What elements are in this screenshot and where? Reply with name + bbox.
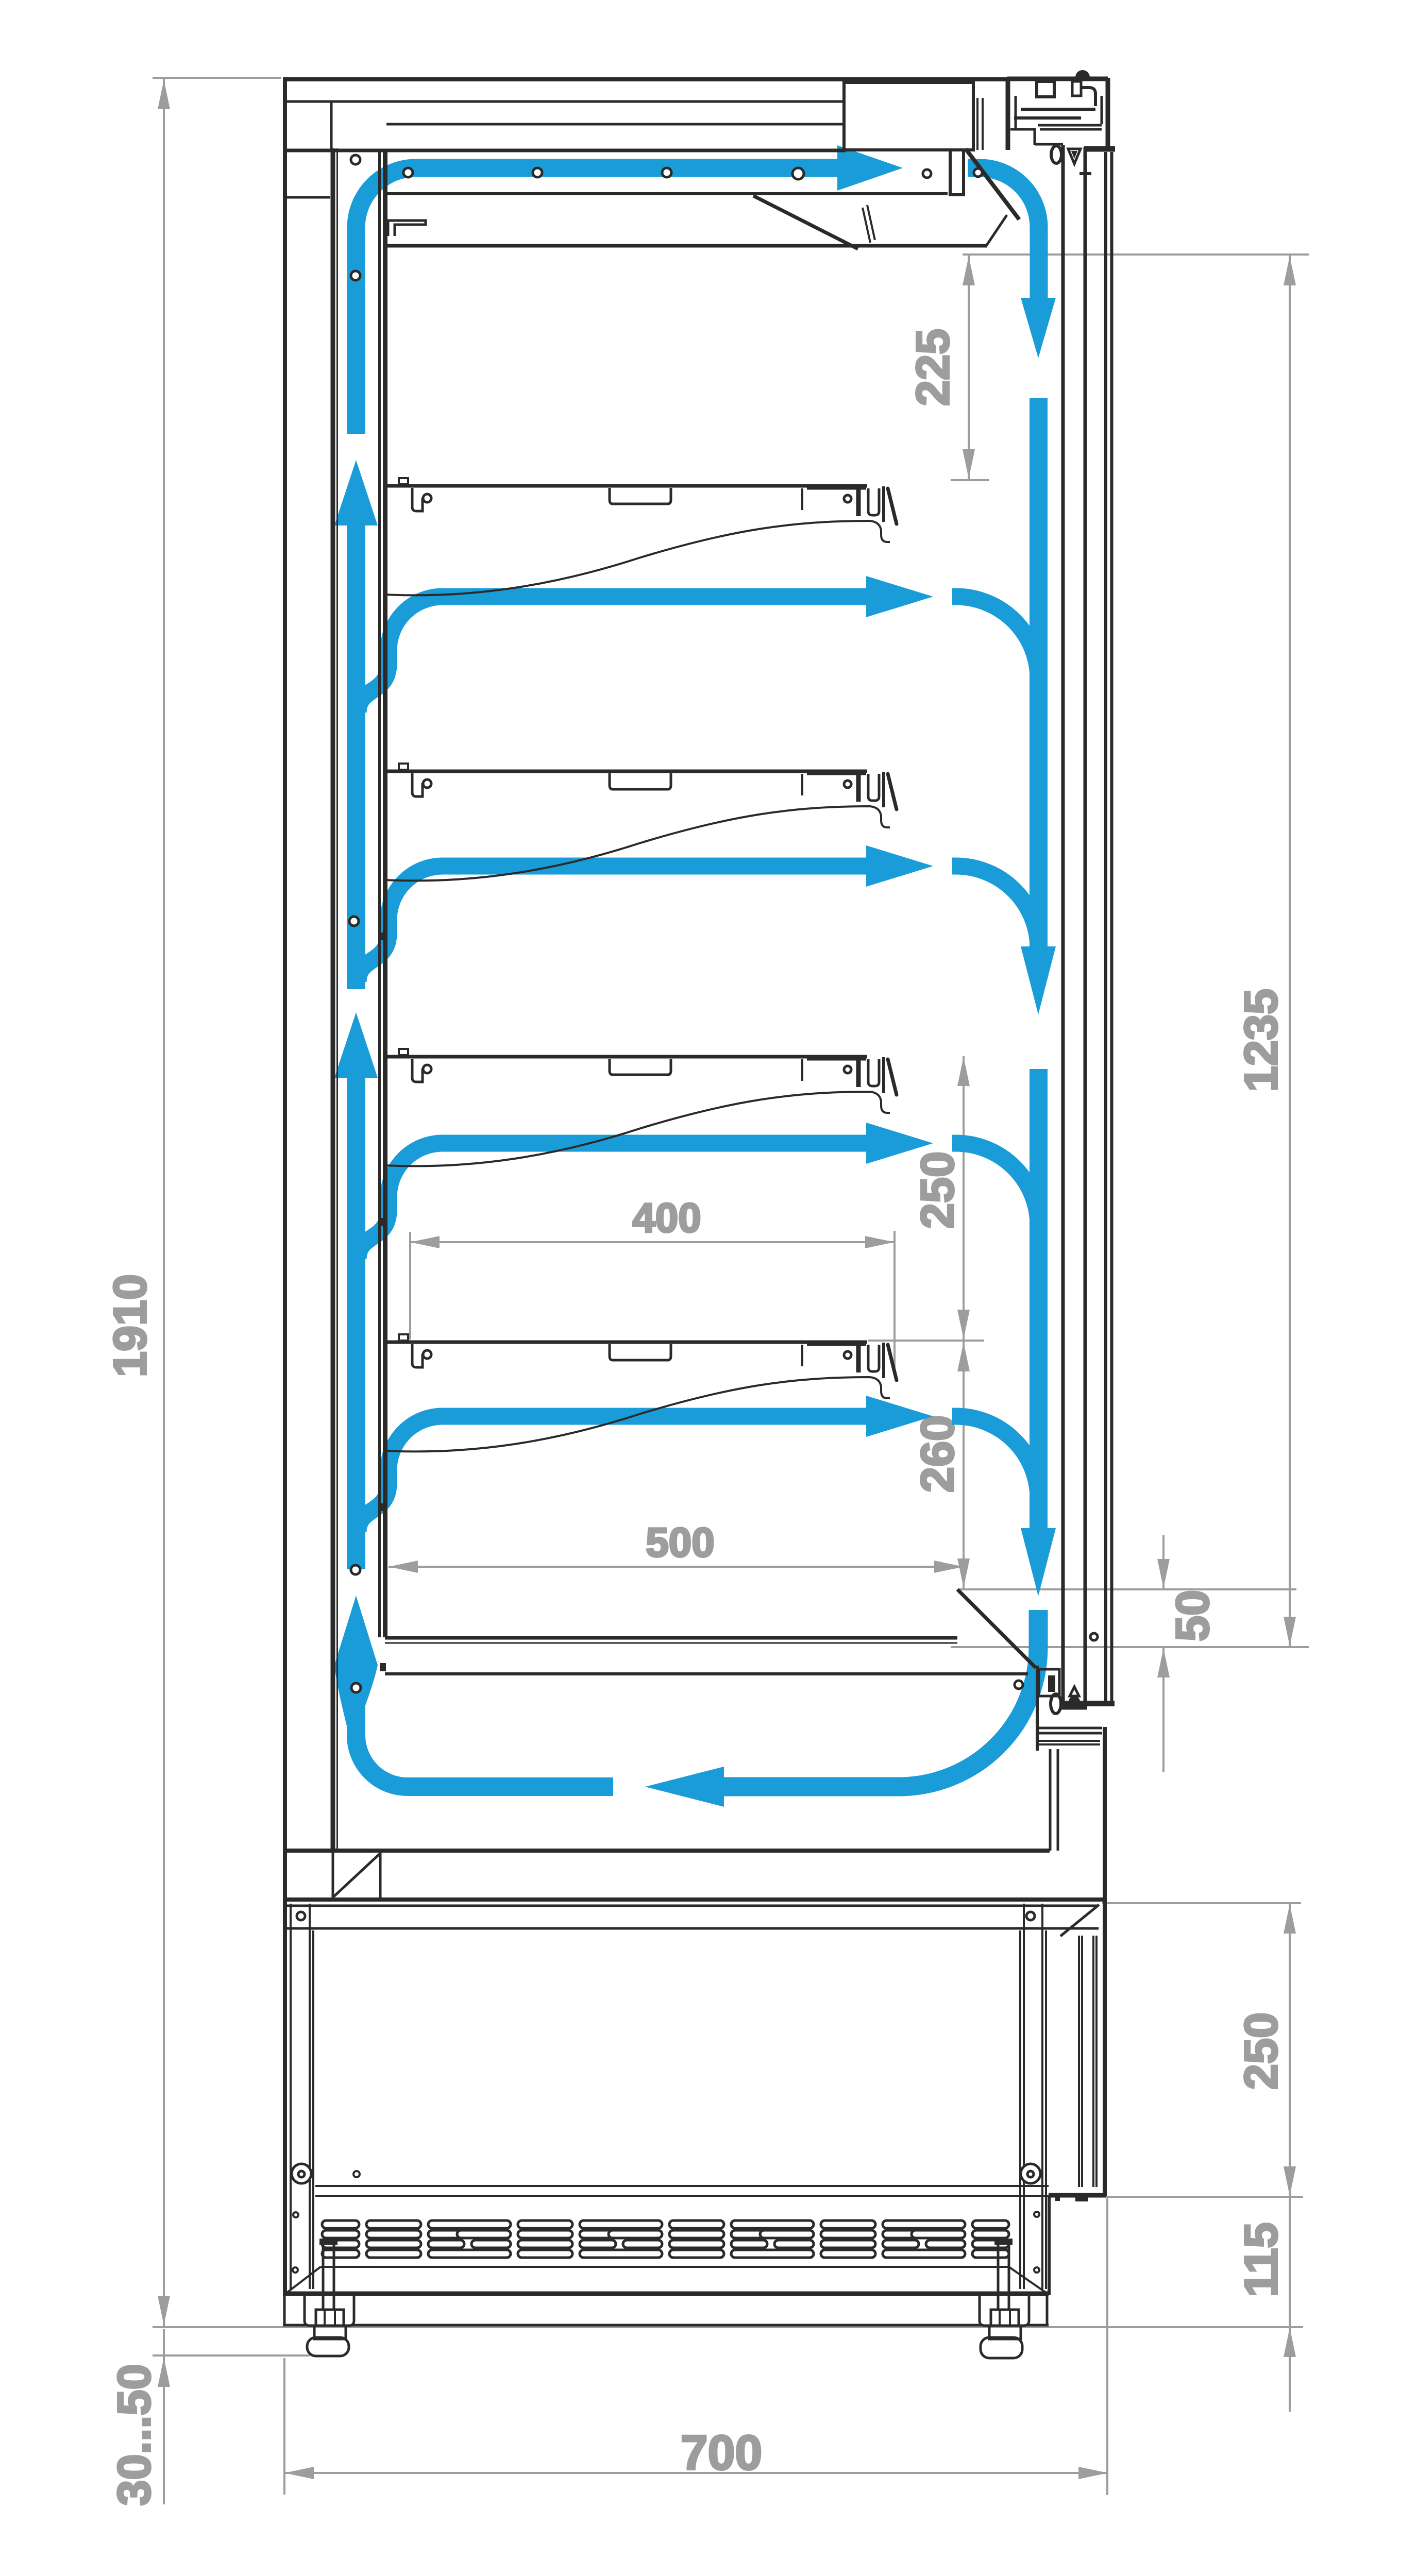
svg-text:250: 250 bbox=[912, 1151, 964, 1229]
svg-text:1235: 1235 bbox=[1236, 989, 1287, 1092]
svg-text:50: 50 bbox=[1167, 1590, 1219, 1641]
svg-text:260: 260 bbox=[912, 1415, 964, 1493]
svg-text:250: 250 bbox=[1236, 2012, 1287, 2090]
svg-text:700: 700 bbox=[681, 2426, 763, 2480]
svg-text:400: 400 bbox=[632, 1195, 701, 1241]
svg-text:115: 115 bbox=[1236, 2222, 1287, 2297]
svg-text:500: 500 bbox=[646, 1519, 714, 1565]
svg-text:1910: 1910 bbox=[105, 1274, 156, 1377]
svg-text:225: 225 bbox=[907, 329, 959, 406]
svg-text:30...50: 30...50 bbox=[109, 2364, 160, 2505]
